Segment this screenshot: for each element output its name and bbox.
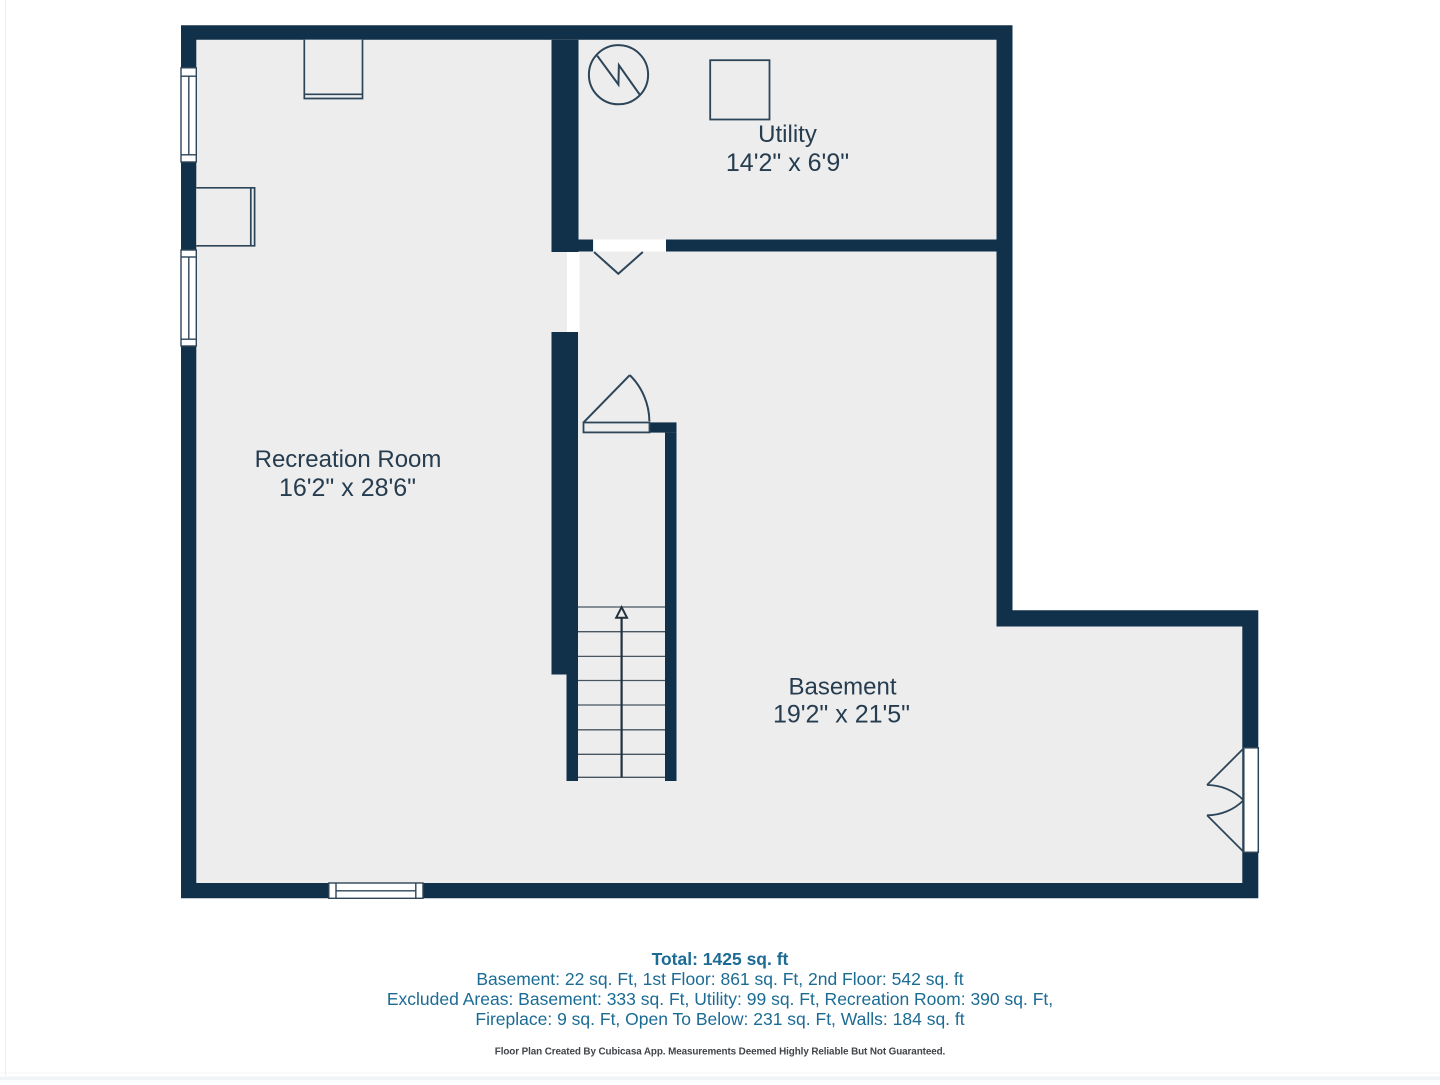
svg-text:Basement: 22 sq. Ft, 1st Floor: Basement: 22 sq. Ft, 1st Floor: 861 sq. … [476,969,963,989]
svg-text:Fireplace: 9 sq. Ft, Open To B: Fireplace: 9 sq. Ft, Open To Below: 231 … [475,1009,964,1029]
svg-text:Total: 1425 sq. ft: Total: 1425 sq. ft [652,949,789,969]
svg-text:Floor Plan Created By Cubicasa: Floor Plan Created By Cubicasa App. Meas… [495,1046,946,1057]
svg-text:Recreation Room: Recreation Room [255,446,442,473]
svg-text:Utility: Utility [758,121,817,148]
svg-text:14'2" x 6'9": 14'2" x 6'9" [726,149,849,177]
svg-text:Basement: Basement [788,673,896,700]
svg-text:16'2" x 28'6": 16'2" x 28'6" [279,474,416,502]
svg-text:19'2" x 21'5": 19'2" x 21'5" [773,701,910,729]
svg-text:Excluded Areas: Basement: 333: Excluded Areas: Basement: 333 sq. Ft, Ut… [387,989,1053,1009]
